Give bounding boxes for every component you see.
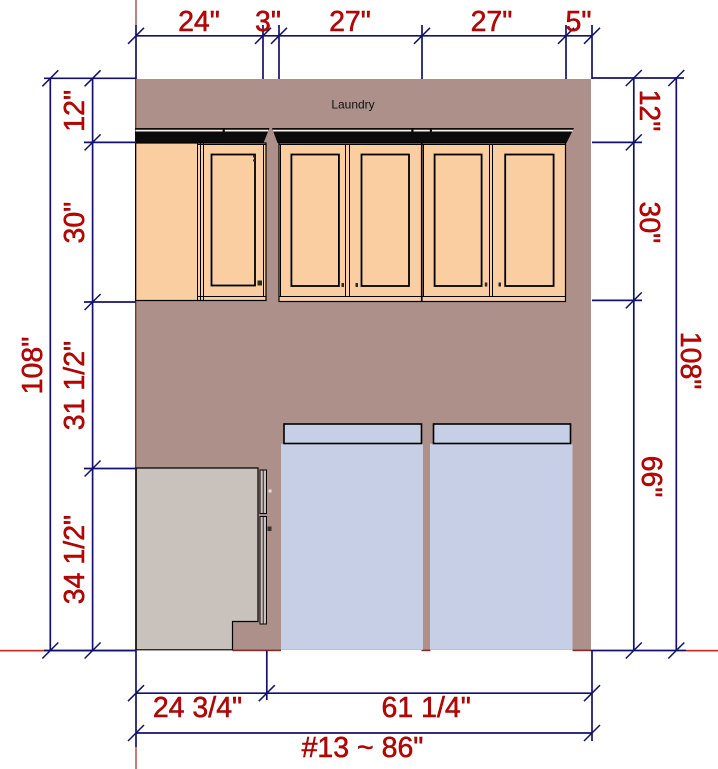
svg-text:108": 108" (17, 337, 49, 395)
svg-text:27": 27" (471, 6, 513, 38)
svg-text:30": 30" (59, 202, 91, 244)
svg-text:34 1/2": 34 1/2" (59, 515, 91, 604)
svg-text:30": 30" (633, 201, 665, 243)
svg-text:24 3/4": 24 3/4" (153, 692, 242, 724)
svg-text:27": 27" (329, 6, 371, 38)
svg-text:108": 108" (674, 332, 706, 390)
svg-text:12": 12" (59, 90, 91, 132)
svg-text:12": 12" (633, 90, 665, 132)
svg-text:24": 24" (178, 6, 220, 38)
svg-text:#13 ~ 86": #13 ~ 86" (302, 732, 424, 764)
svg-text:61 1/4": 61 1/4" (382, 692, 471, 724)
svg-text:3": 3" (255, 6, 281, 38)
svg-text:5": 5" (566, 6, 592, 38)
svg-text:66": 66" (635, 456, 667, 498)
svg-text:Laundry: Laundry (331, 98, 374, 112)
svg-text:31 1/2": 31 1/2" (59, 341, 91, 430)
